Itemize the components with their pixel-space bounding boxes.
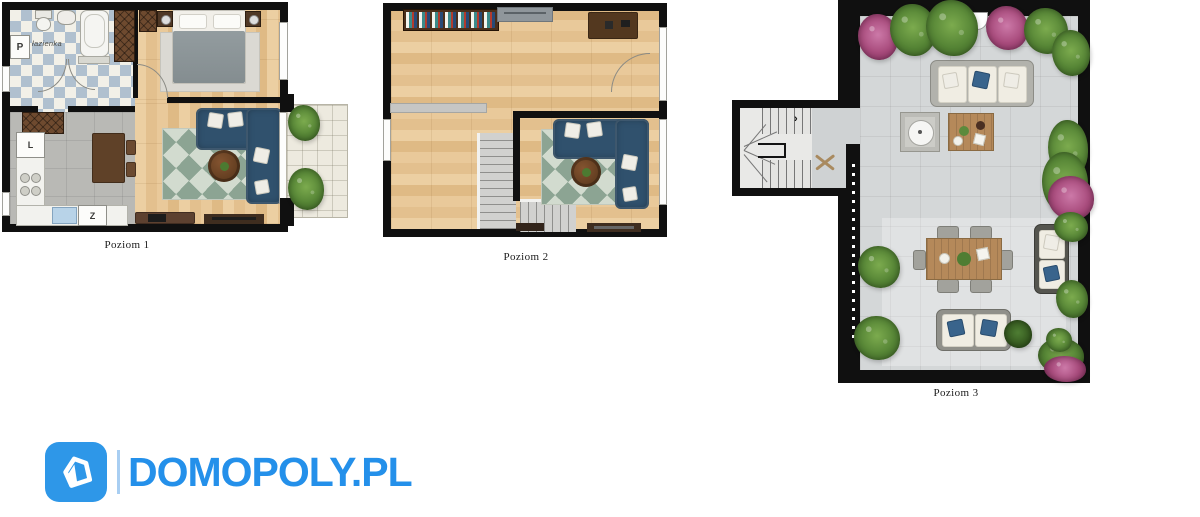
wall bbox=[513, 111, 520, 201]
tv-screen bbox=[212, 217, 256, 220]
terrace-plant-pink bbox=[1044, 356, 1086, 382]
window bbox=[2, 66, 10, 92]
lamp-icon bbox=[249, 15, 259, 25]
terrace-plant bbox=[858, 246, 900, 288]
floor-plan-level-1: P łazienka L Z bbox=[2, 2, 347, 233]
nightstand bbox=[157, 11, 173, 27]
floor-plan-level-3: › bbox=[732, 0, 1090, 385]
lamp-icon bbox=[161, 15, 171, 25]
terrace-plant bbox=[926, 0, 978, 56]
pantry-label-box: P bbox=[10, 35, 30, 59]
monitor bbox=[605, 21, 613, 29]
bed-pillow bbox=[179, 14, 207, 29]
window bbox=[659, 119, 667, 205]
terrace-plant bbox=[1056, 280, 1088, 318]
dishwasher-label: Z bbox=[90, 211, 96, 221]
stair-treads bbox=[762, 160, 812, 188]
sofa-pillow bbox=[586, 121, 603, 138]
bed bbox=[172, 10, 246, 84]
dining-chair bbox=[913, 250, 926, 270]
bed-blanket bbox=[173, 31, 245, 83]
napkin bbox=[976, 247, 990, 261]
dining-chair bbox=[937, 279, 959, 293]
kitchen-island bbox=[135, 212, 195, 224]
shelf-line bbox=[504, 12, 546, 14]
house-icon-svg bbox=[53, 449, 99, 495]
sofa-pillow bbox=[622, 186, 638, 202]
wall-shelf bbox=[497, 7, 553, 22]
fire-pit-center bbox=[918, 130, 922, 134]
nightstand bbox=[245, 11, 261, 27]
patio-coffee-table bbox=[948, 113, 994, 151]
stove bbox=[19, 172, 40, 206]
outdoor-sofa bbox=[936, 309, 1011, 351]
sofa-pillow bbox=[207, 112, 224, 129]
books bbox=[406, 12, 496, 28]
sofa-pillow-blue bbox=[980, 319, 999, 338]
sofa-pillow bbox=[621, 154, 639, 172]
sofa-pillow bbox=[564, 122, 581, 139]
table-plant bbox=[220, 162, 229, 171]
sofa-pillow-blue bbox=[947, 319, 966, 338]
bathtub-inner bbox=[84, 14, 105, 48]
outdoor-sofa bbox=[930, 60, 1034, 107]
wall bbox=[167, 97, 280, 103]
wardrobe bbox=[22, 112, 64, 134]
level-2-label: Poziom 2 bbox=[461, 251, 591, 263]
fridge-box: L bbox=[16, 132, 45, 158]
burner bbox=[20, 173, 30, 183]
terrace-plant bbox=[1004, 320, 1032, 348]
dining-chair bbox=[970, 279, 992, 293]
tv-screen bbox=[594, 226, 634, 229]
window bbox=[2, 192, 10, 216]
annex-tiles bbox=[812, 108, 846, 188]
napkin bbox=[973, 133, 986, 146]
laptop bbox=[621, 20, 630, 27]
bathroom-label: łazienka bbox=[32, 39, 62, 48]
level-1-label: Poziom 1 bbox=[62, 239, 192, 251]
logo-separator bbox=[117, 450, 120, 494]
fridge-label: L bbox=[28, 140, 34, 150]
stairs-direction-arrow: › bbox=[794, 113, 798, 125]
staircase-upper-flight bbox=[477, 133, 516, 229]
balcony-plant bbox=[288, 105, 320, 141]
cabinet bbox=[516, 223, 544, 231]
corridor-tiles bbox=[846, 108, 860, 144]
sofa-pillow bbox=[942, 72, 959, 89]
chair bbox=[126, 140, 136, 155]
domopoly-logo: DOMOPOLY.PL bbox=[45, 442, 412, 502]
desk bbox=[588, 12, 638, 39]
sink bbox=[57, 10, 76, 25]
fire-pit-table bbox=[900, 112, 940, 152]
brand-name: DOMOPOLY.PL bbox=[128, 442, 412, 502]
level-3-label: Poziom 3 bbox=[891, 387, 1021, 399]
tv-stand bbox=[587, 223, 641, 232]
floorplan-sheet: P łazienka L Z bbox=[0, 0, 1200, 517]
sofa-pillow bbox=[254, 179, 270, 195]
plate bbox=[939, 253, 950, 264]
half-wall bbox=[390, 103, 487, 113]
stair-treads bbox=[762, 108, 812, 134]
dishwasher-box: Z bbox=[78, 205, 107, 226]
table-plant bbox=[582, 168, 591, 177]
pantry-label: P bbox=[17, 42, 24, 53]
sofa-pillow bbox=[1003, 72, 1020, 89]
bathtub bbox=[80, 10, 109, 57]
dining-table bbox=[92, 133, 125, 183]
sofa-pillow bbox=[253, 147, 271, 165]
wardrobe bbox=[114, 10, 135, 62]
cooktop bbox=[148, 214, 166, 222]
coffee-table bbox=[208, 150, 240, 182]
kitchen-sink bbox=[52, 207, 77, 224]
coffee-table bbox=[571, 157, 601, 187]
sofa-pillow bbox=[227, 111, 244, 128]
terrace-plant-pink bbox=[986, 6, 1028, 50]
dining-table bbox=[926, 238, 1002, 280]
chair bbox=[126, 162, 136, 177]
window bbox=[383, 119, 391, 161]
bed-pillow bbox=[213, 14, 241, 29]
sofa-pillow-blue bbox=[972, 71, 991, 90]
balcony-plant bbox=[288, 168, 324, 210]
toilet-bowl bbox=[36, 17, 51, 31]
wall bbox=[513, 111, 659, 118]
burner bbox=[31, 173, 41, 183]
stair-landing bbox=[758, 143, 786, 158]
terrace-plant bbox=[1054, 212, 1088, 242]
plate bbox=[953, 136, 963, 146]
window bbox=[659, 27, 667, 101]
table-plant bbox=[957, 252, 971, 266]
burner bbox=[31, 186, 41, 196]
bookshelf bbox=[403, 9, 499, 31]
window bbox=[279, 22, 288, 80]
table-plant bbox=[959, 126, 969, 136]
floor-plan-level-2 bbox=[383, 3, 667, 237]
bowl bbox=[976, 121, 985, 130]
sofa-pillow-blue bbox=[1043, 265, 1061, 283]
terrace-plant bbox=[1052, 30, 1090, 76]
burner bbox=[20, 186, 30, 196]
wardrobe bbox=[139, 10, 157, 32]
wall bbox=[68, 106, 135, 112]
terrace-plant bbox=[854, 316, 900, 360]
house-icon bbox=[45, 442, 107, 502]
terrace-plant bbox=[1046, 328, 1072, 352]
tv-stand bbox=[204, 214, 264, 224]
